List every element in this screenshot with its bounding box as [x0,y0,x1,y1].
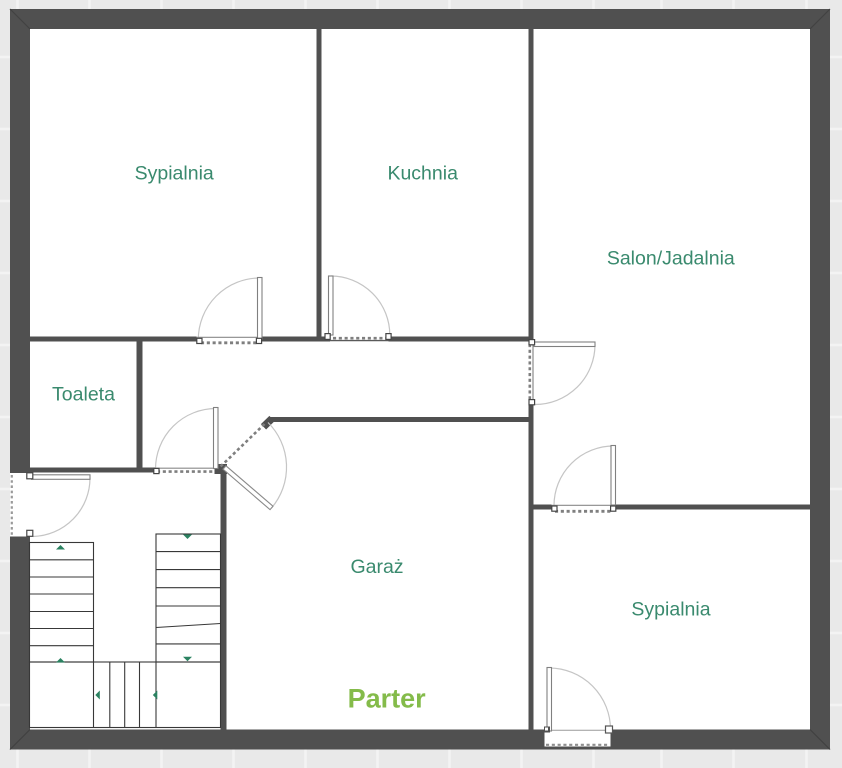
svg-text:Sypialnia: Sypialnia [631,599,710,621]
svg-text:Sypialnia: Sypialnia [135,163,214,185]
svg-text:Parter: Parter [348,684,427,714]
svg-text:Salon/Jadalnia: Salon/Jadalnia [607,248,735,270]
svg-text:Kuchnia: Kuchnia [387,163,458,185]
svg-text:Toaleta: Toaleta [52,384,115,406]
svg-text:Garaż: Garaż [350,556,403,578]
